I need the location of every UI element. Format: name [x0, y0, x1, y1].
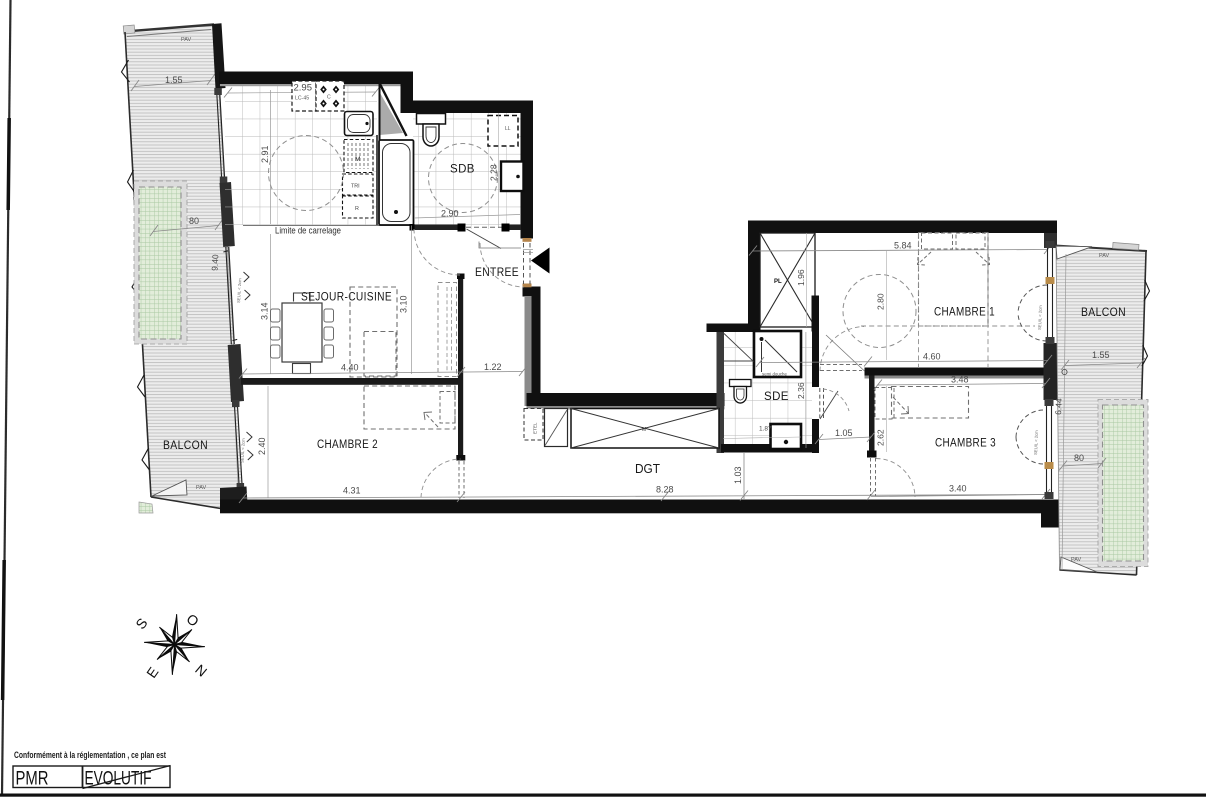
svg-text:1.03: 1.03: [733, 466, 743, 484]
svg-text:Conformément à la réglementati: Conformément à la réglementation , ce pl…: [14, 750, 166, 760]
svg-text:2.28: 2.28: [489, 164, 499, 181]
svg-text:M: M: [355, 156, 360, 163]
svg-text:80: 80: [189, 216, 199, 226]
svg-text:PAV: PAV: [1099, 253, 1110, 259]
svg-text:M: M: [642, 427, 646, 433]
svg-text:4.31: 4.31: [343, 486, 361, 496]
svg-text:SEUIL < 2cm: SEUIL < 2cm: [1033, 430, 1039, 455]
svg-text:2.36: 2.36: [796, 382, 806, 399]
svg-text:9.40: 9.40: [210, 254, 221, 271]
svg-text:PAV: PAV: [196, 485, 207, 491]
svg-text:2.80: 2.80: [876, 293, 886, 310]
svg-text:CHAMBRE 1: CHAMBRE 1: [934, 307, 995, 319]
svg-text:2.95: 2.95: [294, 83, 313, 94]
svg-text:LC-45: LC-45: [295, 96, 309, 102]
svg-text:6.44: 6.44: [1053, 398, 1064, 415]
svg-text:PMR: PMR: [16, 769, 49, 790]
svg-text:1.55: 1.55: [1092, 350, 1110, 360]
svg-text:SEJOUR-CUISINE: SEJOUR-CUISINE: [301, 292, 392, 304]
svg-text:1.22: 1.22: [484, 362, 502, 372]
svg-text:3.10: 3.10: [399, 295, 409, 313]
svg-text:5.84: 5.84: [894, 241, 912, 251]
svg-text:1.96: 1.96: [796, 269, 806, 286]
svg-text:2.40: 2.40: [257, 437, 267, 455]
svg-text:80: 80: [1074, 453, 1084, 463]
svg-text:PAV: PAV: [1071, 557, 1082, 563]
svg-text:3.14: 3.14: [260, 302, 270, 320]
svg-text:R: R: [355, 206, 359, 212]
svg-text:C: C: [327, 95, 331, 101]
svg-text:semi douche: semi douche: [762, 372, 787, 377]
svg-text:SEUIL < 2cm: SEUIL < 2cm: [1037, 305, 1043, 330]
svg-text:SDB: SDB: [450, 164, 475, 176]
svg-text:Limite de carrelage: Limite de carrelage: [275, 226, 341, 237]
svg-text:1.55: 1.55: [165, 75, 183, 85]
svg-text:SDE: SDE: [764, 391, 789, 403]
svg-text:ETEL: ETEL: [533, 422, 538, 434]
svg-text:1.87: 1.87: [759, 426, 772, 433]
svg-text:3.48: 3.48: [951, 375, 969, 385]
svg-text:TRI: TRI: [351, 184, 360, 190]
svg-text:2.90: 2.90: [441, 209, 459, 219]
svg-text:4.60: 4.60: [923, 352, 941, 362]
svg-text:DGT: DGT: [635, 461, 660, 476]
svg-text:4.40: 4.40: [341, 363, 359, 373]
svg-text:1.05: 1.05: [835, 428, 853, 438]
svg-text:PL: PL: [774, 279, 782, 285]
svg-text:BALCON: BALCON: [1081, 307, 1126, 319]
svg-text:8.28: 8.28: [656, 485, 674, 495]
svg-text:LL: LL: [505, 126, 511, 132]
svg-text:2.91: 2.91: [260, 145, 270, 163]
svg-text:PAV: PAV: [181, 37, 192, 43]
svg-text:CHAMBRE 2: CHAMBRE 2: [317, 439, 378, 451]
svg-text:3.40: 3.40: [949, 484, 967, 494]
svg-text:BALCON: BALCON: [163, 440, 208, 452]
svg-text:CHAMBRE 3: CHAMBRE 3: [935, 438, 996, 450]
svg-text:2.62: 2.62: [876, 429, 886, 446]
